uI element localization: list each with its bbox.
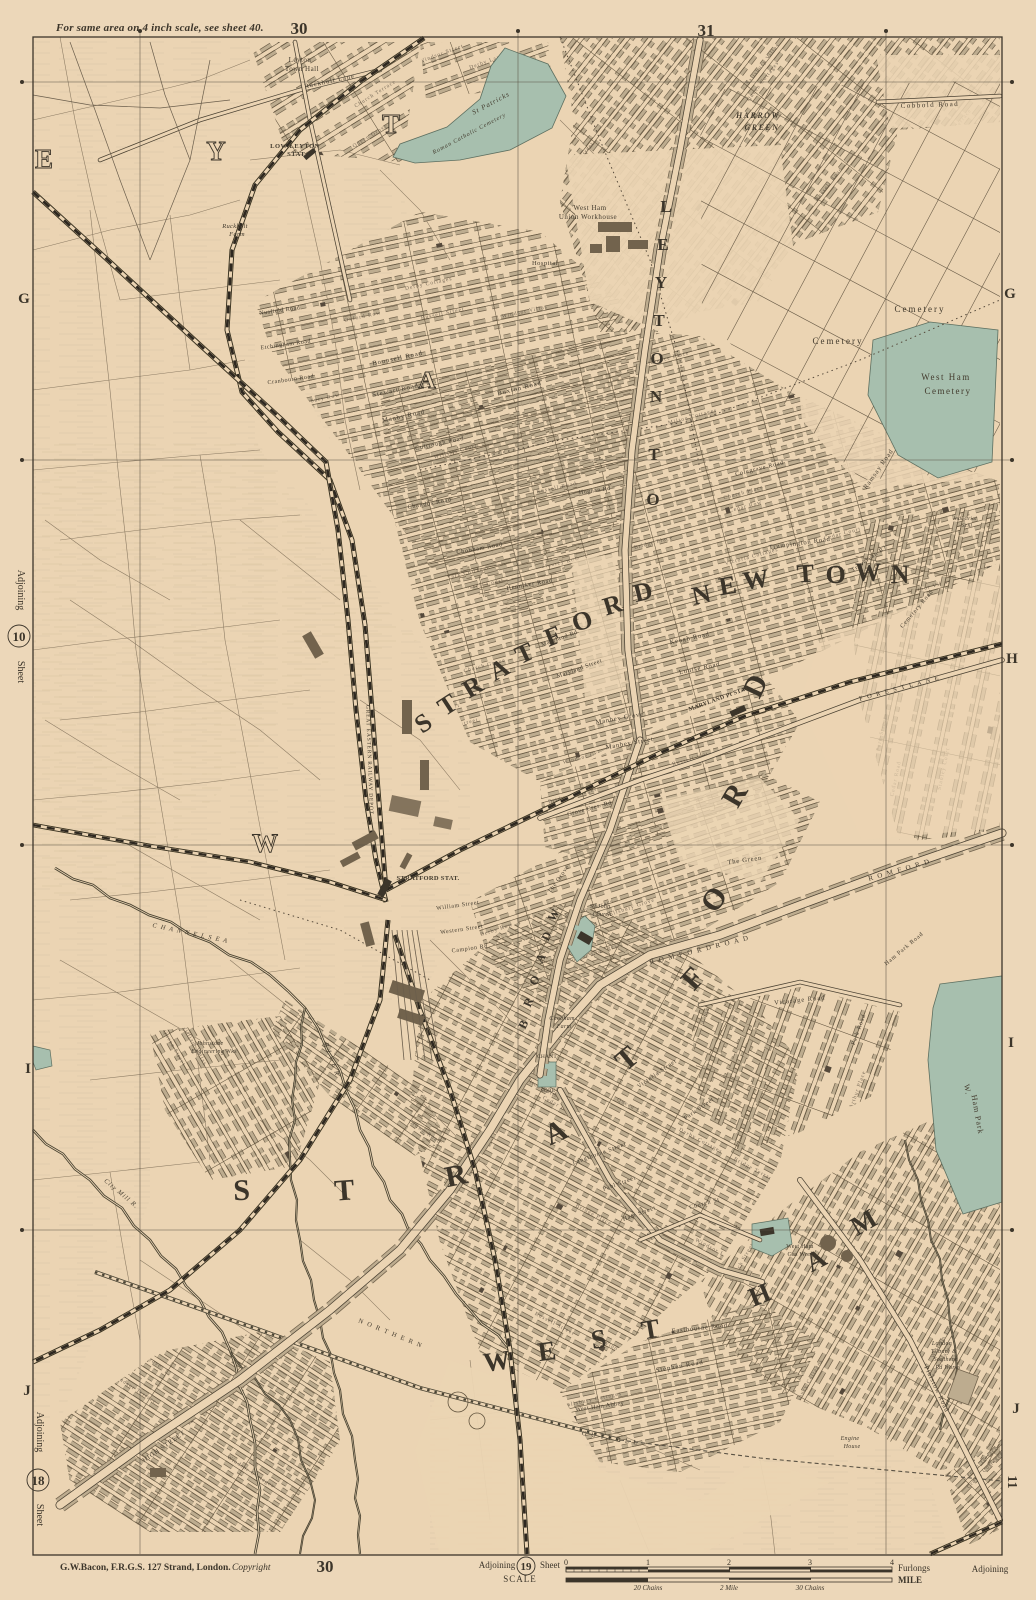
svg-text:Church: Church [593, 912, 612, 918]
svg-text:Adjoining: Adjoining [15, 570, 26, 611]
svg-text:G: G [1004, 286, 1016, 302]
svg-text:MILE: MILE [898, 1575, 922, 1585]
svg-text:Schl: Schl [962, 523, 973, 529]
svg-text:A: A [418, 368, 436, 394]
svg-text:Town Hall: Town Hall [285, 65, 319, 73]
svg-text:11: 11 [1004, 1475, 1019, 1488]
svg-text:Union Workhouse: Union Workhouse [559, 213, 617, 221]
svg-text:W: W [252, 829, 278, 858]
svg-text:Cemetery: Cemetery [895, 304, 946, 314]
svg-text:LOW LEYTON: LOW LEYTON [270, 143, 320, 150]
svg-text:J: J [23, 1383, 31, 1399]
svg-text:Farm: Farm [556, 1024, 572, 1030]
svg-text:S: S [233, 1174, 251, 1208]
svg-text:Y: Y [655, 273, 667, 292]
svg-text:Gas Works: Gas Works [788, 1252, 817, 1258]
svg-text:E: E [657, 235, 668, 254]
svg-text:30: 30 [317, 1557, 334, 1576]
svg-text:GREEN: GREEN [744, 123, 779, 132]
svg-text:For same area on 4 inch scale,: For same area on 4 inch scale, see sheet… [55, 22, 264, 34]
svg-text:West Ham: West Ham [921, 372, 971, 382]
svg-text:Tilbury &: Tilbury & [931, 1349, 957, 1355]
svg-text:Cemetery: Cemetery [925, 386, 972, 396]
svg-text:Industrial: Industrial [952, 516, 977, 522]
svg-text:Adjoining: Adjoining [34, 1412, 45, 1453]
svg-text:G.W.Bacon, F.R.G.S. 127 Strand: G.W.Bacon, F.R.G.S. 127 Strand, London. [60, 1563, 231, 1573]
svg-text:Sheet: Sheet [15, 661, 26, 683]
svg-text:T: T [333, 1173, 355, 1207]
svg-text:O: O [646, 490, 659, 509]
svg-text:SQRE: SQRE [541, 1088, 556, 1094]
svg-text:L: L [660, 197, 671, 216]
svg-text:Engineering Wks: Engineering Wks [190, 1049, 237, 1055]
svg-text:Adjoining: Adjoining [972, 1564, 1009, 1574]
svg-text:Leyton: Leyton [289, 56, 312, 64]
svg-text:1: 1 [646, 1558, 650, 1567]
svg-text:20 Chains: 20 Chains [634, 1584, 663, 1592]
svg-text:O: O [650, 349, 663, 368]
svg-text:30 Chains: 30 Chains [795, 1584, 825, 1592]
svg-text:Y: Y [206, 136, 226, 166]
svg-text:Johnstone: Johnstone [196, 1041, 223, 1047]
svg-text:2: 2 [727, 1558, 731, 1567]
svg-text:Sheet: Sheet [540, 1560, 560, 1570]
svg-text:J: J [1012, 1401, 1020, 1417]
svg-text:Adjoining: Adjoining [479, 1560, 516, 1570]
svg-text:Cemetery: Cemetery [813, 336, 864, 346]
svg-text:I: I [25, 1061, 31, 1077]
svg-text:STRATFORD STAT.: STRATFORD STAT. [397, 875, 460, 882]
svg-text:CHANT: CHANT [537, 1054, 557, 1060]
svg-text:Southend: Southend [934, 1357, 959, 1363]
svg-text:31: 31 [698, 21, 715, 40]
svg-text:18: 18 [32, 1473, 46, 1488]
svg-text:2 Mile: 2 Mile [720, 1584, 738, 1592]
svg-text:Sheet: Sheet [34, 1504, 45, 1526]
svg-text:T: T [796, 558, 815, 588]
svg-text:Furlongs: Furlongs [898, 1563, 931, 1573]
svg-text:Chobham: Chobham [549, 1016, 575, 1022]
svg-text:Hospital: Hospital [532, 260, 558, 267]
svg-text:4: 4 [890, 1558, 894, 1567]
svg-text:N: N [650, 387, 663, 406]
svg-text:London: London [931, 1341, 952, 1347]
svg-text:3: 3 [808, 1558, 812, 1567]
svg-text:W: W [481, 1344, 512, 1377]
svg-text:T: T [648, 445, 660, 464]
svg-text:West Ham: West Ham [786, 1244, 813, 1250]
svg-text:W: W [741, 563, 771, 595]
svg-text:HARROW: HARROW [735, 111, 780, 120]
svg-text:House: House [843, 1444, 861, 1450]
svg-text:T: T [382, 109, 400, 139]
svg-text:N: N [891, 560, 910, 589]
svg-text:Engine: Engine [840, 1436, 860, 1442]
svg-text:Farm: Farm [228, 231, 245, 238]
svg-text:Rd Works: Rd Works [934, 1365, 961, 1371]
svg-text:0: 0 [564, 1558, 568, 1567]
svg-text:T: T [653, 311, 665, 330]
svg-text:H: H [1006, 651, 1018, 667]
svg-text:G: G [18, 291, 30, 307]
svg-text:10: 10 [13, 629, 26, 644]
svg-text:West Ham: West Ham [573, 204, 606, 212]
svg-text:W.: W. [962, 1083, 973, 1095]
svg-text:Copyright: Copyright [232, 1563, 271, 1573]
svg-text:S? John: S? John [590, 904, 611, 910]
svg-text:STAT.: STAT. [287, 151, 307, 158]
svg-text:I: I [1008, 1035, 1014, 1051]
svg-text:19: 19 [521, 1561, 533, 1573]
svg-text:SCALE: SCALE [503, 1574, 537, 1584]
svg-text:Ruckholt: Ruckholt [221, 223, 248, 230]
svg-text:E: E [35, 144, 53, 174]
svg-text:30: 30 [291, 19, 308, 38]
svg-text:O: O [825, 560, 846, 590]
